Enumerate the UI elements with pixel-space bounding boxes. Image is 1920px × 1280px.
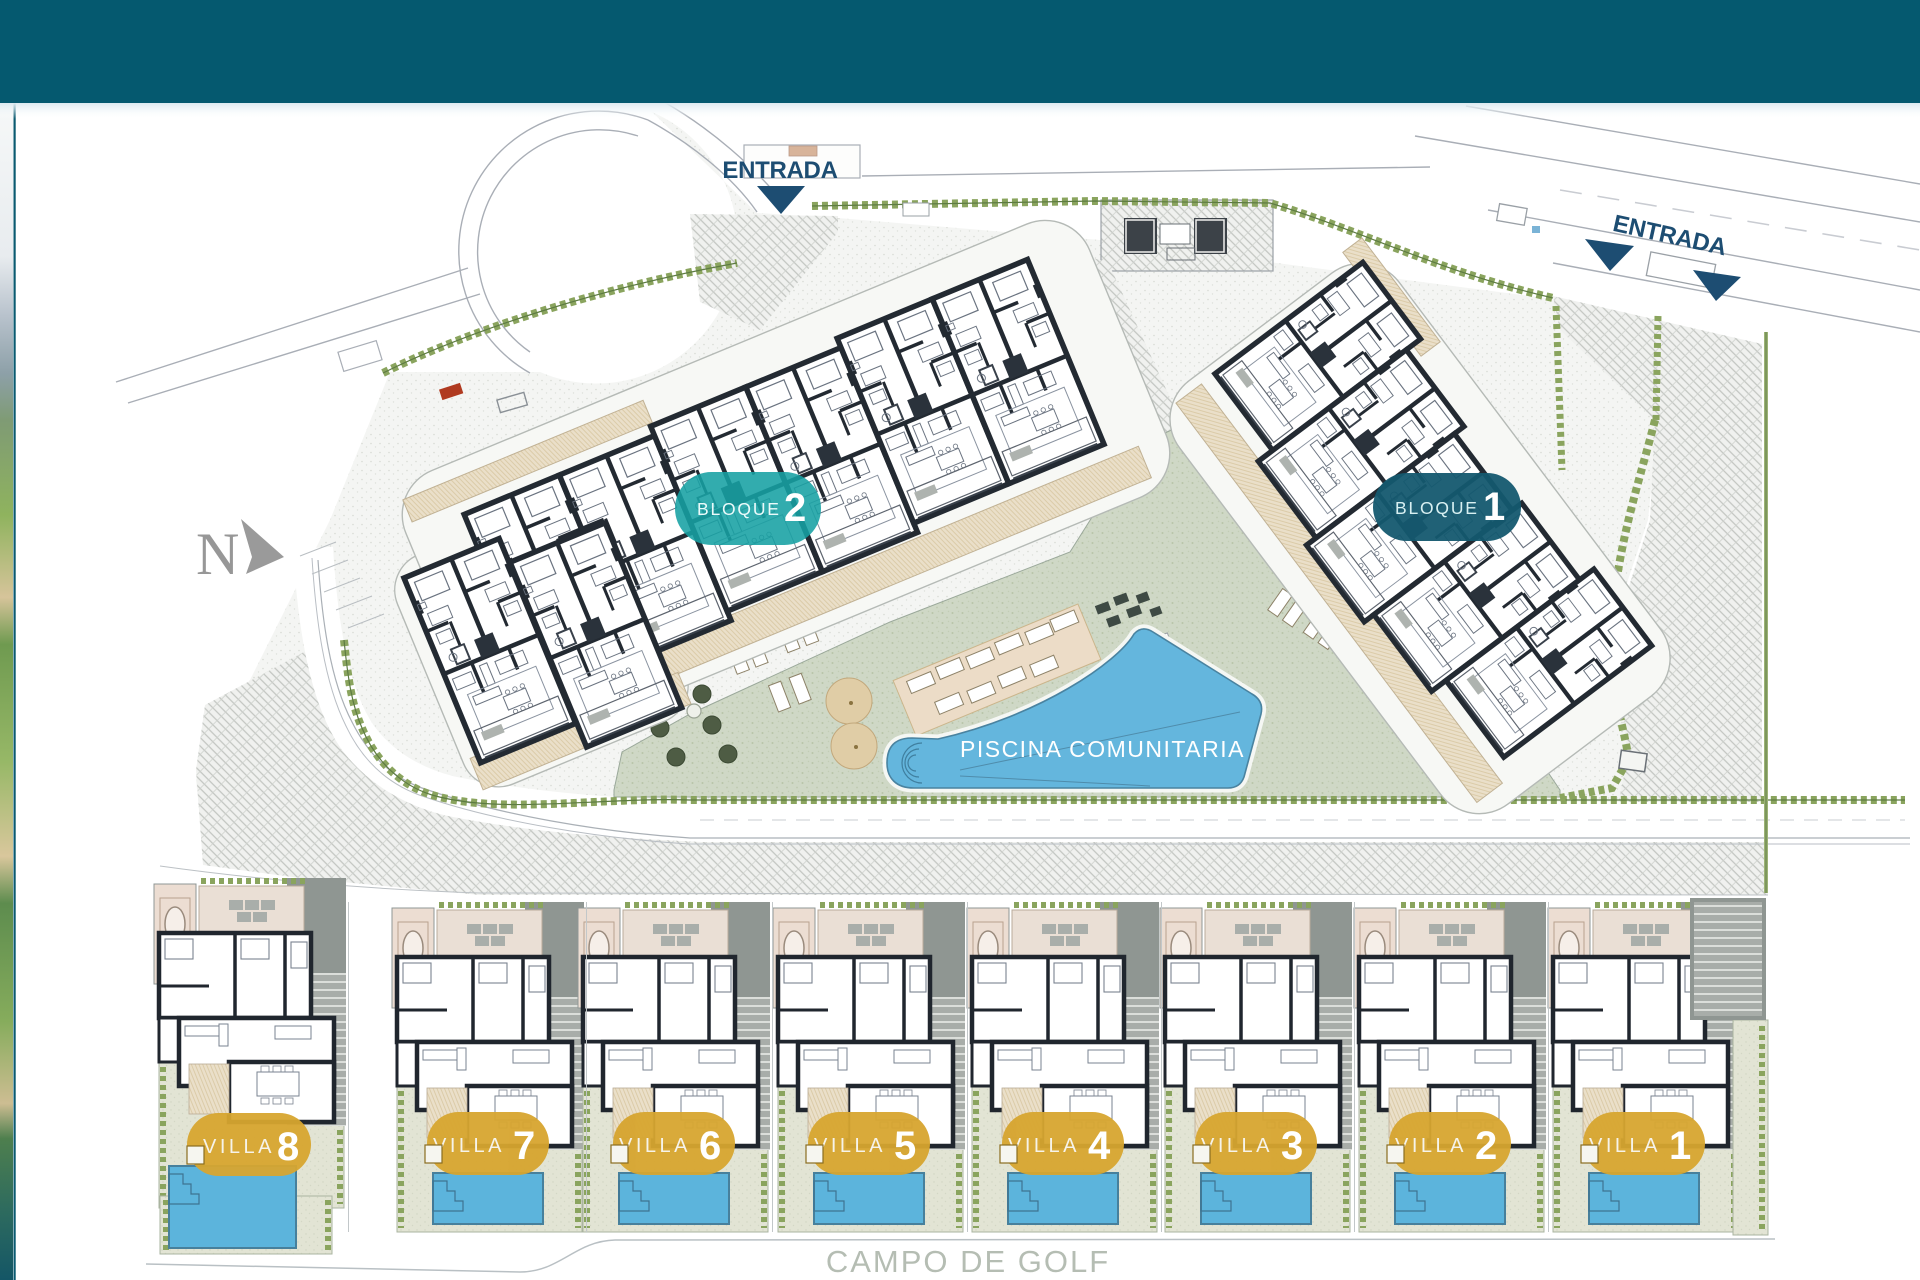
svg-text:VILLA: VILLA	[1201, 1135, 1273, 1157]
svg-text:ENTRADA: ENTRADA	[722, 157, 837, 184]
svg-text:1: 1	[1669, 1124, 1691, 1168]
svg-text:6: 6	[699, 1124, 721, 1168]
svg-text:BLOQUE: BLOQUE	[1395, 498, 1479, 518]
svg-text:VILLA: VILLA	[1395, 1135, 1467, 1157]
svg-text:4: 4	[1088, 1124, 1111, 1168]
svg-text:8: 8	[277, 1125, 299, 1169]
svg-text:2: 2	[1475, 1124, 1497, 1168]
svg-text:3: 3	[1281, 1124, 1303, 1168]
svg-text:N: N	[196, 521, 239, 587]
svg-text:5: 5	[894, 1124, 916, 1168]
svg-text:VILLA: VILLA	[619, 1135, 691, 1157]
svg-text:VILLA: VILLA	[1008, 1135, 1080, 1157]
svg-text:7: 7	[513, 1124, 535, 1168]
svg-text:BLOQUE: BLOQUE	[697, 499, 781, 519]
svg-text:VILLA: VILLA	[433, 1135, 505, 1157]
svg-text:1: 1	[1483, 485, 1505, 529]
svg-text:PISCINA COMUNITARIA: PISCINA COMUNITARIA	[960, 736, 1245, 762]
svg-text:VILLA: VILLA	[1589, 1135, 1661, 1157]
svg-text:VILLA: VILLA	[814, 1135, 886, 1157]
svg-text:VILLA: VILLA	[203, 1136, 275, 1158]
svg-text:CAMPO DE GOLF: CAMPO DE GOLF	[826, 1244, 1110, 1279]
svg-text:2: 2	[784, 486, 806, 530]
